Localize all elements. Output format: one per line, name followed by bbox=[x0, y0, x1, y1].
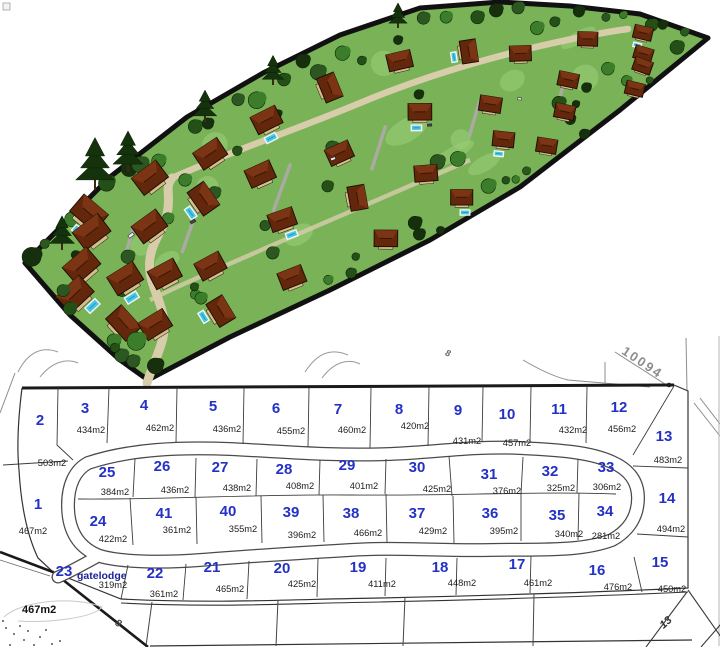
tree-canopy bbox=[605, 13, 611, 19]
plot-area-label: 465m2 bbox=[216, 584, 244, 594]
plot-number-label: 34 bbox=[597, 503, 614, 520]
tree-canopy bbox=[575, 100, 580, 105]
plot-number-label: 29 bbox=[339, 457, 356, 474]
tree-canopy bbox=[397, 35, 403, 41]
plot-area-label: 462m2 bbox=[146, 423, 174, 433]
car-3d bbox=[427, 124, 432, 127]
plot-number-label: 1 bbox=[34, 496, 42, 513]
plot-number-label: 10 bbox=[499, 406, 516, 423]
tree-canopy bbox=[271, 247, 280, 256]
plot-number-label: 37 bbox=[409, 505, 426, 522]
tree-3d bbox=[579, 129, 590, 139]
plot-area-label: 460m2 bbox=[338, 425, 366, 435]
plot-number-label: 31 bbox=[481, 466, 498, 483]
car-3d bbox=[517, 98, 521, 100]
tree-canopy bbox=[684, 28, 690, 34]
tree-canopy bbox=[456, 151, 466, 161]
plot-number-label: 28 bbox=[276, 461, 293, 478]
tree-canopy bbox=[316, 65, 327, 76]
tree-canopy bbox=[29, 247, 42, 260]
corner-road-lines bbox=[646, 590, 720, 647]
plot-number-label: 24 bbox=[90, 513, 107, 530]
plot-area-label: 455m2 bbox=[277, 426, 305, 436]
plot-area-label: 436m2 bbox=[213, 424, 241, 434]
plot-area-label: 461m2 bbox=[524, 578, 552, 588]
speckle-dot bbox=[45, 629, 47, 631]
tree-canopy bbox=[326, 181, 334, 189]
tree-canopy bbox=[114, 343, 120, 349]
plot-number-label: 2 bbox=[36, 412, 44, 429]
plot-area-label: 466m2 bbox=[354, 528, 382, 538]
tree-canopy bbox=[649, 77, 654, 82]
tree-canopy bbox=[622, 11, 627, 16]
tree-canopy bbox=[153, 358, 164, 369]
plot-number-label: 19 bbox=[350, 559, 367, 576]
speckle-dot bbox=[27, 630, 29, 632]
plot-number-label: 23 bbox=[56, 563, 73, 580]
tree-canopy bbox=[327, 275, 333, 281]
road-strip-dividers bbox=[146, 594, 534, 646]
tree-canopy bbox=[282, 73, 291, 82]
tree-canopy bbox=[350, 268, 357, 275]
plot-area-label: 340m2 bbox=[555, 529, 583, 539]
tree-canopy bbox=[583, 129, 590, 136]
plot-area-label: 420m2 bbox=[401, 421, 429, 431]
tree-canopy bbox=[236, 94, 245, 103]
plot-number-label: 18 bbox=[432, 559, 449, 576]
tree-canopy bbox=[516, 2, 525, 11]
plot-area-label: 384m2 bbox=[101, 487, 129, 497]
tree-canopy bbox=[476, 11, 485, 20]
speckle-dot bbox=[39, 636, 41, 638]
plan-top-thick-border bbox=[22, 385, 674, 388]
plot-area-label: 436m2 bbox=[161, 485, 189, 495]
speckle-dot bbox=[9, 644, 11, 646]
tree-canopy bbox=[62, 285, 71, 294]
speckle-dot bbox=[59, 640, 61, 642]
plot-area-label: 411m2 bbox=[368, 579, 396, 589]
plot-area-label: 422m2 bbox=[99, 534, 127, 544]
tree-canopy bbox=[255, 92, 267, 104]
plot-number-label: 12 bbox=[611, 399, 628, 416]
tree-canopy bbox=[554, 17, 561, 24]
plot-number-label: 5 bbox=[209, 398, 217, 415]
plot-number-label: 15 bbox=[652, 554, 669, 571]
plot-area-label: 361m2 bbox=[150, 589, 178, 599]
render-3d-estate bbox=[22, 2, 708, 383]
tree-canopy bbox=[301, 54, 311, 64]
map-annotation: 8 bbox=[444, 348, 452, 359]
plot-number-label: 20 bbox=[274, 560, 291, 577]
tree-canopy bbox=[418, 90, 425, 97]
plot-number-label: 36 bbox=[482, 505, 499, 522]
tree-canopy bbox=[134, 332, 147, 345]
plot-number-label: 3 bbox=[81, 400, 89, 417]
map-annotation: 467m2 bbox=[22, 604, 56, 616]
tree-canopy bbox=[606, 62, 615, 71]
plot-number-label: 7 bbox=[334, 401, 342, 418]
tree-canopy bbox=[341, 46, 351, 56]
tree-canopy bbox=[126, 250, 135, 259]
plot-area-label: 448m2 bbox=[448, 578, 476, 588]
tree-canopy bbox=[213, 187, 222, 196]
pine-layer bbox=[120, 131, 135, 145]
tree-canopy bbox=[525, 167, 531, 173]
speckle-dot bbox=[51, 643, 53, 645]
plot-area-label: 425m2 bbox=[423, 484, 451, 494]
pine-layer bbox=[268, 55, 279, 65]
house-3d bbox=[374, 230, 398, 249]
speckle-dot bbox=[13, 633, 15, 635]
plot-area-label: 425m2 bbox=[288, 579, 316, 589]
site-visual: 2503m23434m24462m25436m26455m27460m28420… bbox=[0, 0, 720, 647]
plot-number-label: 13 bbox=[656, 428, 673, 445]
plot-area-label: 432m2 bbox=[559, 425, 587, 435]
tree-canopy bbox=[577, 6, 585, 14]
plot-area-label: 450m2 bbox=[658, 584, 686, 594]
plot-number-label: 22 bbox=[147, 565, 164, 582]
tree-canopy bbox=[120, 349, 130, 359]
tree-canopy bbox=[207, 118, 215, 126]
site-development-screenshot: 2503m23434m24462m25436m26455m27460m28420… bbox=[0, 0, 720, 647]
tree-canopy bbox=[132, 355, 141, 364]
plot-number-label: 41 bbox=[156, 505, 173, 522]
plot-number-label: 8 bbox=[395, 401, 403, 418]
tree-canopy bbox=[418, 228, 426, 236]
tree-canopy bbox=[445, 11, 453, 19]
speckle-dot bbox=[19, 625, 21, 627]
road-strip-bottom-edge bbox=[150, 640, 692, 646]
tree-canopy bbox=[199, 292, 207, 300]
plot-area-label: 438m2 bbox=[223, 483, 251, 493]
plot-labels: 2503m23434m24462m25436m26455m27460m28420… bbox=[19, 397, 686, 599]
plot-number-label: 4 bbox=[140, 397, 149, 414]
tree-canopy bbox=[505, 176, 510, 181]
scan-artifact-square bbox=[3, 3, 10, 10]
plot-area-label: 306m2 bbox=[593, 482, 621, 492]
tree-canopy bbox=[661, 20, 668, 27]
plot-area-label: 281m2 bbox=[592, 531, 620, 541]
plot-area-label: 483m2 bbox=[654, 455, 682, 465]
speckle-dot bbox=[2, 620, 4, 622]
tree-canopy bbox=[494, 4, 503, 13]
plot-area-label: 396m2 bbox=[288, 530, 316, 540]
house-3d bbox=[577, 32, 598, 49]
plot-number-label: 26 bbox=[154, 458, 171, 475]
speckle-dot bbox=[5, 627, 7, 629]
tree-canopy bbox=[236, 146, 243, 153]
speckle-dot bbox=[33, 644, 35, 646]
tree-canopy bbox=[650, 19, 659, 28]
pine-layer bbox=[85, 138, 104, 156]
plot-number-label: 32 bbox=[542, 463, 559, 480]
speckle-dot bbox=[23, 639, 25, 641]
plot-number-label: 38 bbox=[343, 505, 360, 522]
tree-canopy bbox=[436, 155, 446, 165]
tree-canopy bbox=[535, 21, 544, 30]
tree-canopy bbox=[422, 12, 431, 21]
plot-number-label: 14 bbox=[659, 490, 676, 507]
plot-area-label: 456m2 bbox=[608, 424, 636, 434]
plot-area-label: 467m2 bbox=[19, 526, 47, 536]
house-3d bbox=[509, 45, 531, 63]
pine-layer bbox=[393, 3, 402, 12]
tree-canopy bbox=[157, 154, 167, 164]
tree-canopy bbox=[112, 334, 121, 343]
tree-canopy bbox=[167, 213, 175, 221]
plot-number-label: 25 bbox=[99, 464, 116, 481]
plot-area-label: 457m2 bbox=[503, 438, 531, 448]
tree-3d bbox=[646, 77, 654, 84]
tree-canopy bbox=[355, 253, 360, 258]
plot-area-label: 376m2 bbox=[493, 486, 521, 496]
plot-number-label: 17 bbox=[509, 556, 526, 573]
plot-area-label: 476m2 bbox=[604, 582, 632, 592]
site-plan: 2503m23434m24462m25436m26455m27460m28420… bbox=[0, 343, 720, 647]
plot-area-label: 408m2 bbox=[286, 481, 314, 491]
tree-canopy bbox=[585, 83, 592, 90]
tree-canopy bbox=[183, 174, 192, 183]
tree-canopy bbox=[193, 283, 199, 289]
tree-canopy bbox=[193, 120, 203, 130]
middle-row-separator bbox=[78, 493, 616, 499]
plot-number-label: 9 bbox=[454, 402, 462, 419]
map-annotation: 10094 bbox=[619, 343, 666, 381]
plot-number-label: 33 bbox=[598, 459, 615, 476]
plot-number-label: 16 bbox=[589, 562, 606, 579]
tree-canopy bbox=[515, 176, 520, 181]
plot-area-label: 361m2 bbox=[163, 525, 191, 535]
plot-area-label: 355m2 bbox=[229, 524, 257, 534]
plot-area-label: 503m2 bbox=[38, 458, 66, 468]
plot-number-label: 40 bbox=[220, 503, 237, 520]
plot-area-label: 431m2 bbox=[453, 436, 481, 446]
tree-canopy bbox=[361, 56, 367, 62]
plot-number-label: 30 bbox=[409, 459, 426, 476]
plot-number-label: 35 bbox=[549, 507, 566, 524]
gatelodge-label: gatelodge bbox=[77, 570, 127, 582]
tree-canopy bbox=[675, 40, 685, 50]
tree-canopy bbox=[487, 179, 497, 189]
pine-layer bbox=[199, 90, 211, 101]
plot-number-label: 6 bbox=[272, 400, 280, 417]
speckle-dots bbox=[2, 620, 61, 646]
plot-number-label: 39 bbox=[283, 504, 300, 521]
plot-area-label: 325m2 bbox=[547, 483, 575, 493]
plot-number-label: 11 bbox=[551, 401, 567, 418]
tree-canopy bbox=[439, 226, 444, 231]
plot-area-label: 434m2 bbox=[77, 425, 105, 435]
plot-area-label: 494m2 bbox=[657, 524, 685, 534]
plot-number-label: 27 bbox=[212, 459, 229, 476]
tree-canopy bbox=[43, 239, 49, 245]
plot-area-label: 395m2 bbox=[490, 526, 518, 536]
plot-area-label: 429m2 bbox=[419, 526, 447, 536]
plot-area-label: 401m2 bbox=[350, 481, 378, 491]
plot-number-label: 21 bbox=[204, 559, 221, 576]
tree-canopy bbox=[68, 302, 77, 311]
tree-canopy bbox=[413, 216, 422, 225]
